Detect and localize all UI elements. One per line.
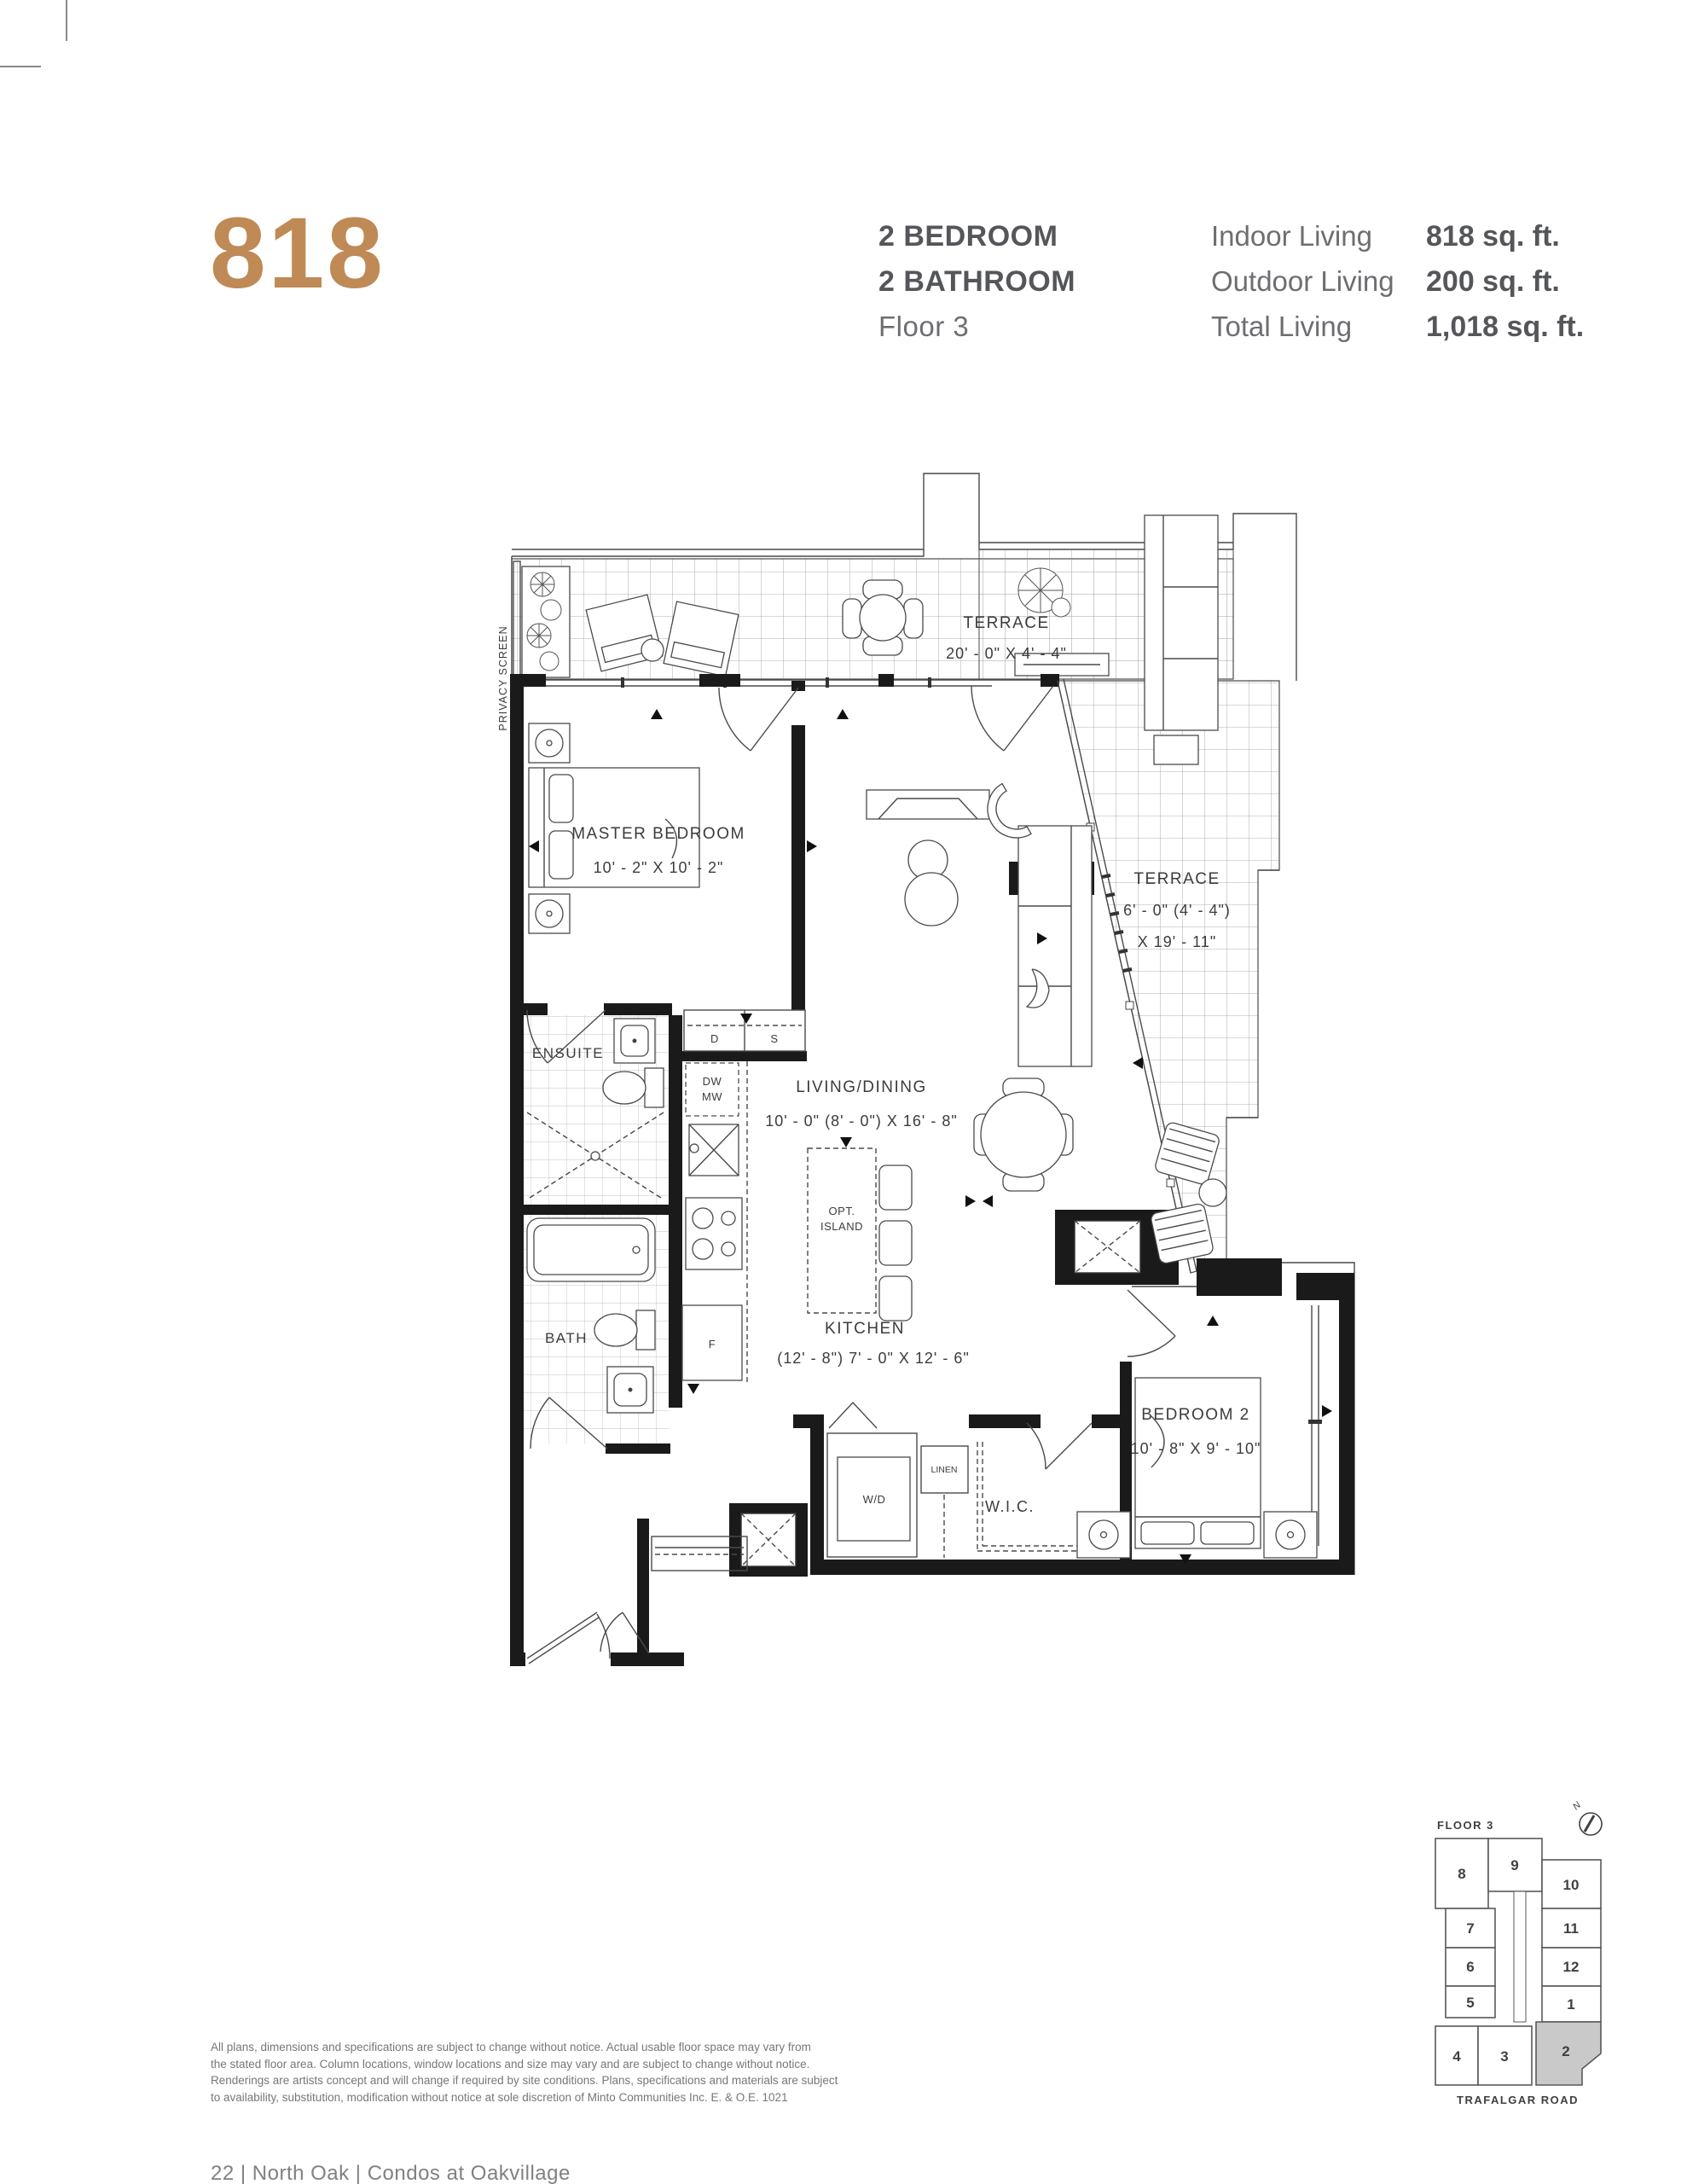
linen-label: LINEN <box>931 1465 958 1475</box>
floor-plan: PRIVACY SCREEN <box>495 461 1382 1681</box>
cooktop <box>686 1198 742 1269</box>
stat-value: 1,018 sq. ft. <box>1426 311 1584 344</box>
linen-closet: LINEN <box>921 1446 968 1558</box>
living-dining-label: LIVING/DINING <box>796 1078 927 1096</box>
master-door <box>719 688 798 751</box>
keyplan-unit-8: 8 <box>1458 1866 1465 1882</box>
wic-door <box>1027 1423 1092 1469</box>
disclaimer-line: All plans, dimensions and specifications… <box>211 2039 978 2056</box>
master-bedroom-dims: 10' - 2" X 10' - 2" <box>594 859 724 876</box>
washer-dryer-label: W/D <box>863 1493 886 1506</box>
keyplan-title: FLOOR 3 <box>1437 1819 1494 1832</box>
dishwasher-microwave <box>686 1063 739 1116</box>
stat-row: Total Living1,018 sq. ft. <box>1211 311 1584 356</box>
kitchen-dims: (12' - 8") 7' - 0" X 12' - 6" <box>777 1350 970 1367</box>
terrace-top-dims: 20' - 0" X 4' - 4" <box>946 645 1067 662</box>
stat-label: Outdoor Living <box>1211 265 1426 298</box>
island: OPT. ISLAND <box>808 1148 912 1321</box>
terrace-chair <box>1150 1203 1214 1264</box>
stat-value: 200 sq. ft. <box>1426 265 1560 299</box>
disclaimer: All plans, dimensions and specifications… <box>211 2039 978 2106</box>
stat-row: Indoor Living818 sq. ft. <box>1211 220 1584 265</box>
ensuite: ENSUITE <box>524 1010 669 1205</box>
unit-specs: 2 BEDROOM 2 BATHROOM Floor 3 <box>878 220 1075 356</box>
bedroom2-door <box>1128 1290 1175 1356</box>
coffee-table <box>905 873 958 926</box>
mw-label: MW <box>702 1090 722 1103</box>
terrace-sofa <box>1145 515 1218 764</box>
closet-d-label: D <box>710 1032 719 1045</box>
living-dining-dims: 10' - 0" (8' - 0") X 16' - 8" <box>765 1112 958 1130</box>
stat-label: Indoor Living <box>1211 220 1426 253</box>
keyplan-street-label: TRAFALGAR ROAD <box>1457 2094 1579 2106</box>
disclaimer-line: the stated floor area. Column locations,… <box>211 2056 978 2073</box>
area-stats: Indoor Living818 sq. ft. Outdoor Living2… <box>1211 220 1584 356</box>
wic-label: W.I.C. <box>985 1498 1035 1515</box>
page-footer: 22 | North Oak | Condos at Oakvillage <box>211 2162 571 2184</box>
stat-row: Outdoor Living200 sq. ft. <box>1211 265 1584 311</box>
kitchen-label: KITCHEN <box>825 1320 905 1338</box>
keyplan-unit-5: 5 <box>1466 1995 1474 2011</box>
page-title-unit-number: 818 <box>210 203 386 304</box>
master-bedroom: MASTER BEDROOM 10' - 2" X 10' - 2" <box>529 688 798 933</box>
entry-door <box>527 1612 610 1664</box>
bath: BATH <box>524 1215 669 1449</box>
north-indicator: N <box>1571 1800 1602 1835</box>
terrace-right-dims-1: 6' - 0" (4' - 4") <box>1123 902 1231 919</box>
spec-floor: Floor 3 <box>878 311 1075 356</box>
shaft-dining <box>1075 1221 1140 1273</box>
island-label-1: OPT. <box>829 1205 855 1217</box>
kitchen-sink <box>689 1124 739 1176</box>
bedroom2-label: BEDROOM 2 <box>1141 1406 1250 1424</box>
dining-table <box>974 1078 1073 1191</box>
keyplan-unit-11: 11 <box>1563 1920 1579 1937</box>
crop-mark-vertical <box>66 0 67 41</box>
terrace-top-label: TERRACE <box>963 614 1049 632</box>
stat-value: 818 sq. ft. <box>1426 220 1560 253</box>
spec-bedrooms: 2 BEDROOM <box>878 220 1075 265</box>
north-label: N <box>1571 1800 1583 1812</box>
laundry-closet: W/D <box>827 1403 917 1557</box>
disclaimer-line: to availability, substitution, modificat… <box>211 2089 978 2106</box>
stat-label: Total Living <box>1211 311 1426 343</box>
keyplan-unit-6: 6 <box>1466 1959 1474 1975</box>
island-label-2: ISLAND <box>820 1220 863 1233</box>
brochure-page: 818 2 BEDROOM 2 BATHROOM Floor 3 Indoor … <box>0 0 1687 2184</box>
keyplan-unit-4: 4 <box>1452 2048 1461 2065</box>
terrace-door <box>971 686 1053 751</box>
crop-mark-horizontal <box>0 66 41 67</box>
bedroom2-window <box>1308 1305 1322 1546</box>
key-plan: FLOOR 3 N 8 9 10 7 11 6 <box>1431 1790 1614 2114</box>
ensuite-label: ENSUITE <box>532 1045 604 1061</box>
shaft-entry <box>741 1513 796 1566</box>
closet-s-label: S <box>770 1032 778 1045</box>
kitchen: DW MW F OPT. ISLAND <box>682 1061 970 1382</box>
terrace-right-label: TERRACE <box>1133 870 1220 888</box>
dw-label: DW <box>703 1075 722 1088</box>
keyplan-unit-7: 7 <box>1466 1920 1474 1937</box>
terrace-right-dims-2: X 19' - 11" <box>1138 933 1217 950</box>
sofa <box>1018 826 1092 1066</box>
bedroom2-dims: 10' - 8" X 9' - 10" <box>1131 1440 1261 1457</box>
keyplan-unit-3: 3 <box>1500 2048 1508 2065</box>
keyplan-unit-10: 10 <box>1563 1877 1580 1893</box>
keyplan-unit-1: 1 <box>1567 1996 1574 2013</box>
disclaimer-line: Renderings are artists concept and will … <box>211 2072 978 2089</box>
fridge-label: F <box>709 1338 716 1350</box>
keyplan-unit-9: 9 <box>1510 1857 1518 1873</box>
privacy-screen: PRIVACY SCREEN <box>497 561 570 731</box>
bath-label: BATH <box>545 1330 588 1346</box>
foyer-closet <box>600 1536 747 1653</box>
keyplan-unit-2: 2 <box>1562 2043 1569 2059</box>
terrace-side-table <box>1199 1179 1226 1206</box>
master-bedroom-label: MASTER BEDROOM <box>571 825 745 843</box>
privacy-screen-label: PRIVACY SCREEN <box>497 625 509 730</box>
tv-console <box>867 790 989 819</box>
spec-bathrooms: 2 BATHROOM <box>878 265 1075 311</box>
keyplan-unit-12: 12 <box>1563 1959 1580 1975</box>
